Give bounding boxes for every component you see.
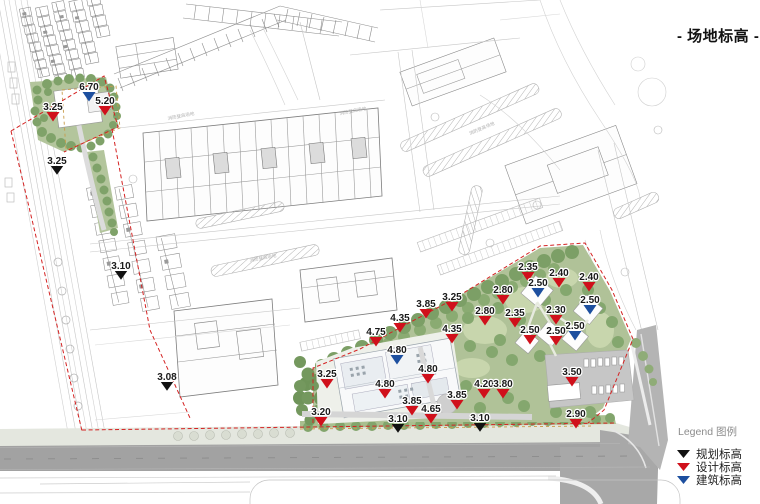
svg-text:4.35: 4.35 [442, 324, 462, 335]
svg-text:3.85: 3.85 [402, 396, 422, 407]
svg-text:3.50: 3.50 [562, 367, 582, 378]
svg-text:4.65: 4.65 [421, 404, 441, 415]
svg-text:规划标高: 规划标高 [696, 447, 742, 461]
svg-text:3.10: 3.10 [111, 261, 131, 272]
svg-text:5.20: 5.20 [95, 96, 115, 107]
svg-text:3.85: 3.85 [416, 299, 436, 310]
svg-text:4.75: 4.75 [366, 327, 386, 338]
svg-text:- 场地标高 -: - 场地标高 - [677, 27, 759, 45]
svg-text:2.80: 2.80 [475, 306, 495, 317]
svg-text:2.50: 2.50 [565, 321, 585, 332]
svg-text:2.40: 2.40 [579, 272, 599, 283]
svg-text:2.50: 2.50 [580, 295, 600, 306]
svg-text:2.80: 2.80 [493, 285, 513, 296]
svg-text:2.50: 2.50 [520, 325, 540, 336]
svg-text:2.50: 2.50 [528, 278, 548, 289]
svg-text:4.35: 4.35 [390, 313, 410, 324]
svg-text:3.25: 3.25 [442, 292, 462, 303]
svg-text:3.10: 3.10 [470, 413, 490, 424]
svg-text:4.80: 4.80 [375, 379, 395, 390]
svg-text:6.70: 6.70 [79, 82, 99, 93]
svg-text:3.20: 3.20 [311, 407, 331, 418]
svg-text:4.80: 4.80 [387, 345, 407, 356]
svg-text:3.85: 3.85 [447, 390, 467, 401]
svg-text:3.25: 3.25 [43, 102, 63, 113]
svg-text:2.35: 2.35 [505, 308, 525, 319]
svg-text:4.80: 4.80 [418, 364, 438, 375]
svg-text:3.80: 3.80 [493, 379, 513, 390]
svg-text:2.35: 2.35 [518, 262, 538, 273]
svg-text:2.50: 2.50 [546, 326, 566, 337]
svg-text:设计标高: 设计标高 [696, 460, 742, 474]
svg-text:3.25: 3.25 [47, 156, 67, 167]
svg-text:Legend 图例: Legend 图例 [678, 425, 737, 438]
svg-text:3.25: 3.25 [317, 369, 337, 380]
svg-text:2.40: 2.40 [549, 268, 569, 279]
svg-text:建筑标高: 建筑标高 [696, 473, 742, 487]
svg-text:4.20: 4.20 [474, 379, 494, 390]
svg-text:3.10: 3.10 [388, 414, 408, 425]
svg-text:2.90: 2.90 [566, 409, 586, 420]
svg-text:2.30: 2.30 [546, 305, 566, 316]
svg-text:3.08: 3.08 [157, 372, 177, 383]
